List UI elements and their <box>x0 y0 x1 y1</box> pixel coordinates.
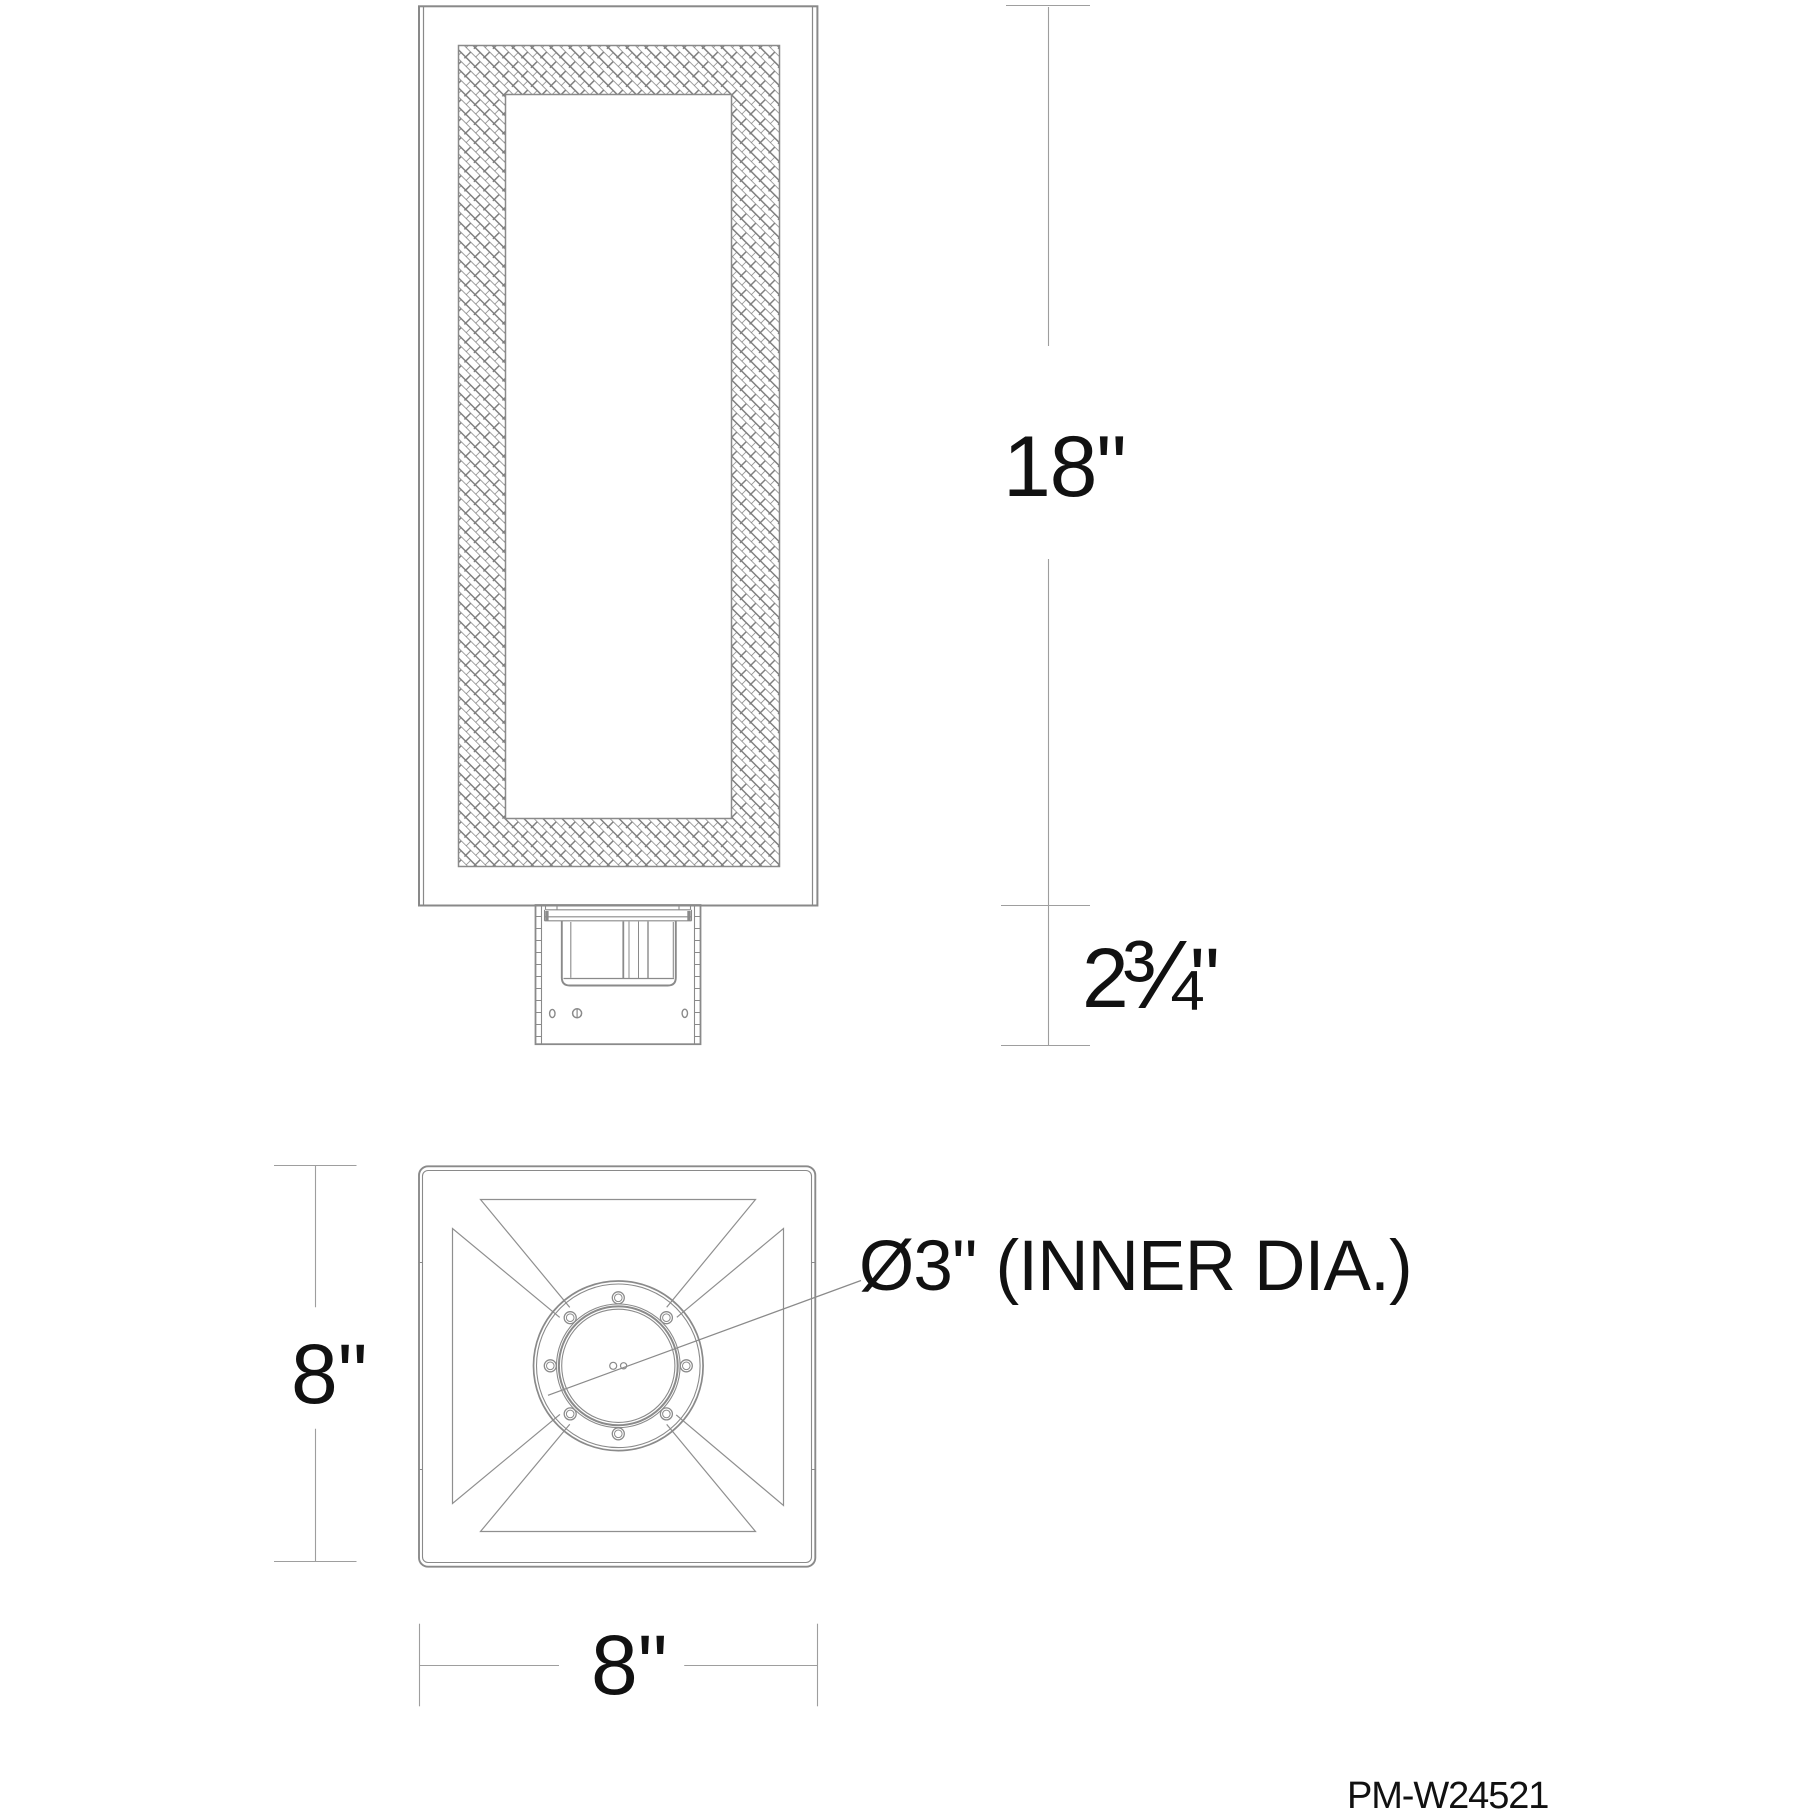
svg-text:8": 8" <box>291 1327 368 1421</box>
svg-text:": " <box>1190 931 1220 1025</box>
svg-text:Ø3" (INNER DIA.): Ø3" (INNER DIA.) <box>859 1227 1412 1306</box>
svg-text:PM-W24521: PM-W24521 <box>1347 1775 1548 1816</box>
svg-text:8": 8" <box>591 1618 668 1712</box>
svg-text:18": 18" <box>1003 419 1126 515</box>
